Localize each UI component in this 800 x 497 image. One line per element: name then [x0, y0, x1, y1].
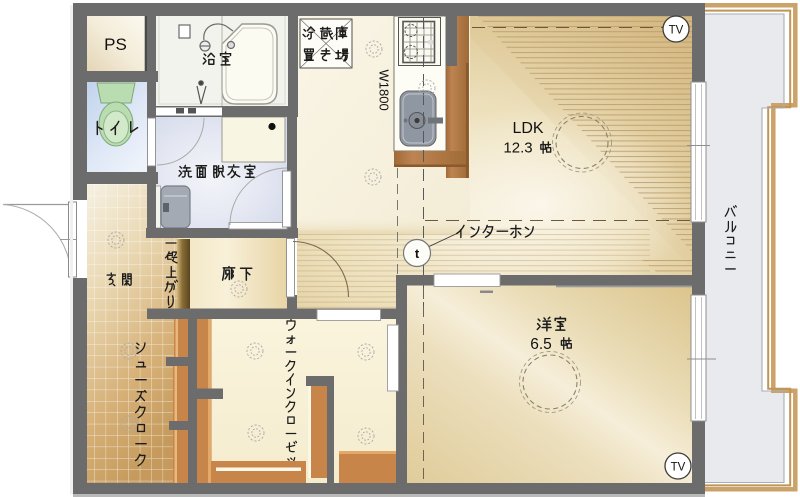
svg-text:TV: TV — [671, 462, 686, 474]
svg-text:6.5: 6.5 — [530, 336, 552, 353]
svg-text:W1800: W1800 — [377, 70, 392, 111]
svg-text:TV: TV — [669, 25, 684, 37]
svg-text:t: t — [415, 246, 420, 261]
svg-text:PS: PS — [104, 35, 127, 54]
svg-text:12.3: 12.3 — [503, 140, 532, 157]
svg-text:LDK: LDK — [512, 120, 543, 137]
